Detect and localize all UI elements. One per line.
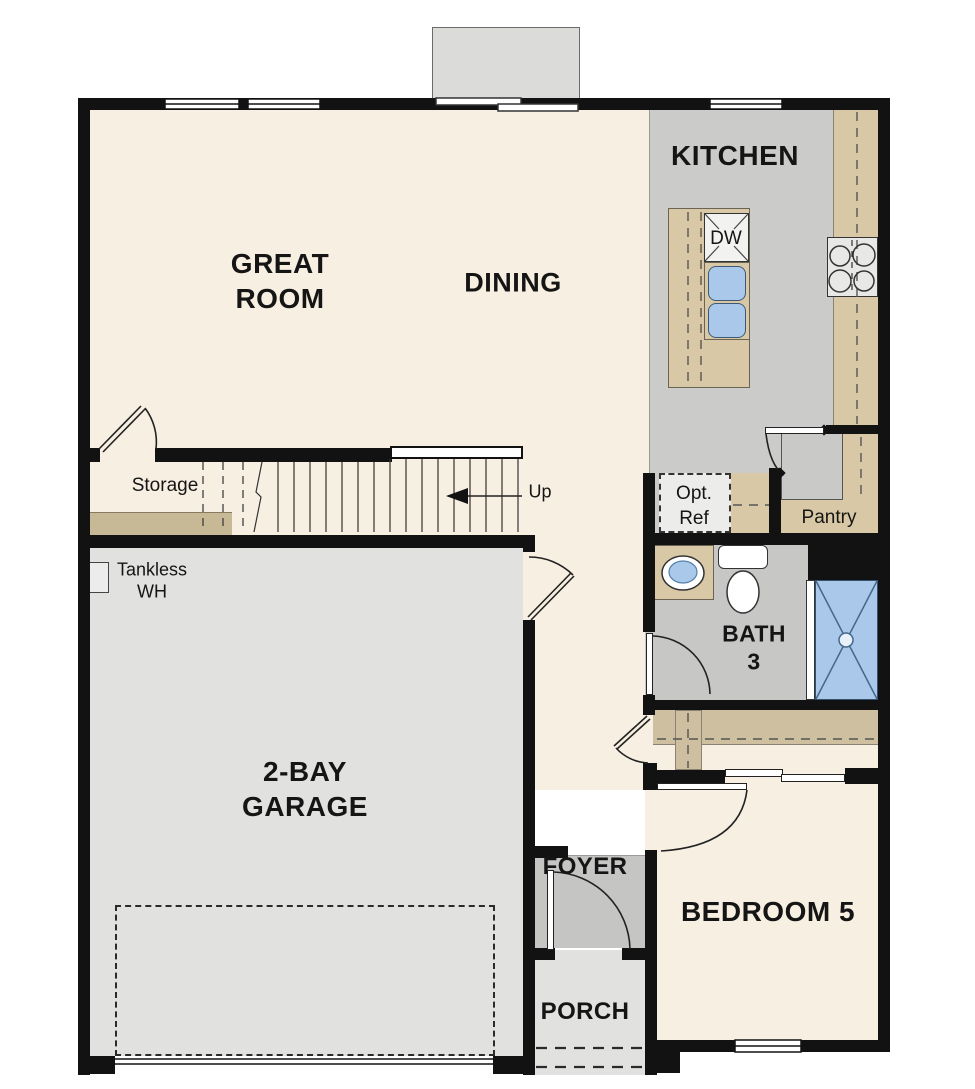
room-label-foyer: FOYER xyxy=(543,853,628,881)
wall-top xyxy=(78,98,890,110)
room-label-bath3-line2: 3 xyxy=(747,649,760,676)
room-label-bath3-line1: BATH xyxy=(722,621,786,648)
wall-closet-top xyxy=(643,700,890,710)
bump-out xyxy=(432,27,580,100)
optref-counter xyxy=(731,473,769,533)
wall-garage-bottom-right xyxy=(493,1056,535,1074)
floor-plan: KITCHEN GREAT ROOM DINING 2-BAY GARAGE B… xyxy=(0,0,975,1089)
wall-pantry-left xyxy=(769,468,781,545)
stair-railing xyxy=(390,446,523,459)
room-label-porch: PORCH xyxy=(541,998,630,1026)
sink-basin-top xyxy=(708,266,746,301)
label-up: Up xyxy=(528,482,551,503)
label-dishwasher: DW xyxy=(710,228,742,250)
label-opt-ref-line1: Opt. xyxy=(676,483,712,505)
wall-bath-left-a xyxy=(643,545,655,632)
room-label-pantry: Pantry xyxy=(802,507,857,529)
room-label-storage: Storage xyxy=(132,475,199,497)
shower xyxy=(815,580,878,700)
room-label-bedroom5: BEDROOM 5 xyxy=(681,896,855,928)
wall-garage-top xyxy=(78,535,535,548)
bedroom5-door-leaf xyxy=(657,783,747,790)
closet-slider-panel-a xyxy=(725,769,783,777)
wall-bedroom-bottom xyxy=(645,1040,890,1052)
room-label-dining: DINING xyxy=(464,268,562,299)
bath3-door-leaf xyxy=(646,633,653,695)
pantry-door-leaf xyxy=(765,427,824,434)
room-label-kitchen: KITCHEN xyxy=(671,140,799,172)
wall-bedroom-door xyxy=(650,770,725,784)
wall-garage-right-a xyxy=(523,535,535,552)
wall-pantry-top xyxy=(826,425,878,434)
bath-vanity xyxy=(652,545,714,600)
pantry-floor xyxy=(781,433,843,500)
wall-stair xyxy=(155,448,392,462)
wall-slider-stub xyxy=(845,768,890,784)
closet-slider-panel-b xyxy=(781,774,845,782)
room-label-great-room-line2: ROOM xyxy=(235,283,324,315)
shower-glass xyxy=(806,580,815,700)
label-opt-ref-line2: Ref xyxy=(679,508,709,530)
front-door-leaf xyxy=(547,870,554,950)
label-tankless-line2: WH xyxy=(137,582,167,603)
wall-foyer-right xyxy=(645,850,657,950)
linen-shelf xyxy=(675,710,702,770)
tankless-water-heater xyxy=(88,562,109,593)
room-label-great-room-line1: GREAT xyxy=(231,248,329,280)
room-label-garage-line1: 2-BAY xyxy=(263,756,347,788)
room-label-garage-line2: GARAGE xyxy=(242,791,368,823)
cooktop xyxy=(827,237,878,297)
storage-shelf xyxy=(90,512,232,535)
label-tankless-line1: Tankless xyxy=(117,560,187,581)
sink-basin-bottom xyxy=(708,303,746,338)
wall-stair-stub xyxy=(90,448,100,462)
wall-bedroom-bottom-stub xyxy=(645,1040,680,1073)
wall-shower-block xyxy=(808,535,890,580)
wall-foyer-bottom-right xyxy=(622,948,645,960)
wall-left xyxy=(78,98,90,1075)
toilet-tank xyxy=(718,545,768,569)
wall-garage-bottom-left xyxy=(78,1056,115,1074)
garage-door-swing-area xyxy=(115,905,495,1056)
